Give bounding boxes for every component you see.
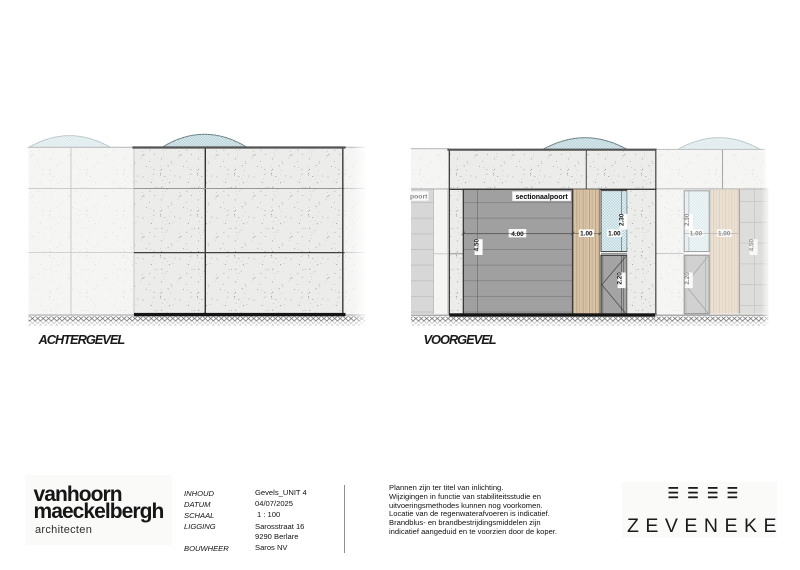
svg-text:4.50: 4.50 [474, 238, 481, 251]
svg-text:sectionaalpoort: sectionaalpoort [516, 194, 569, 201]
svg-text:1.00: 1.00 [718, 231, 731, 238]
svg-text:ACHTERGEVEL: ACHTERGEVEL [38, 332, 126, 347]
svg-text:1.00: 1.00 [690, 231, 703, 238]
svg-text:2.30: 2.30 [684, 213, 691, 226]
svg-text:VOORGEVEL: VOORGEVEL [424, 332, 497, 347]
svg-text:1.00: 1.00 [580, 231, 593, 238]
svg-text:4.00: 4.00 [511, 231, 524, 238]
svg-text:1.00: 1.00 [608, 231, 621, 238]
svg-text:4.50: 4.50 [749, 238, 756, 251]
svg-text:2.30: 2.30 [619, 213, 626, 226]
svg-text:2.20: 2.20 [617, 272, 624, 285]
svg-text:2.20: 2.20 [684, 272, 691, 285]
svg-text:poort: poort [410, 194, 428, 201]
